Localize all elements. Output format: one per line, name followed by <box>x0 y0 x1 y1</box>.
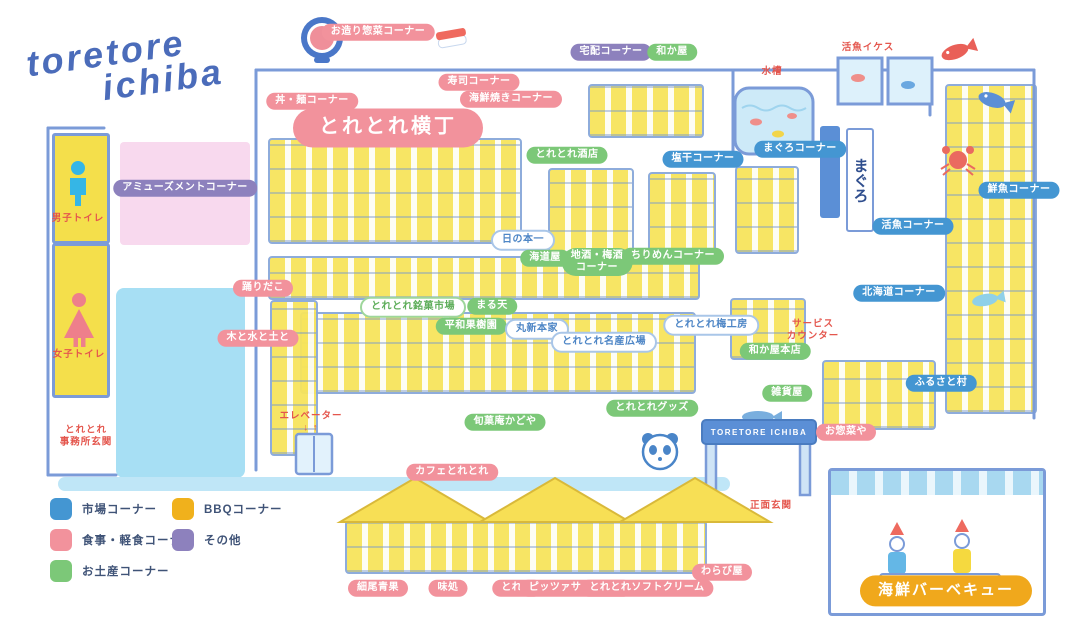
maguro-banner: まぐろ <box>846 128 874 232</box>
red-fish-icon <box>939 38 978 63</box>
legend-souvenir: お土産コーナー <box>50 560 170 582</box>
ajidokoro: 味処 <box>429 580 468 597</box>
legend-market-label: 市場コーナー <box>82 501 157 517</box>
osozaiya: お惣菜や <box>816 424 876 441</box>
service-counter-label: サービスカウンター <box>787 319 840 344</box>
cafe-toretore: カフェとれとれ <box>406 464 498 481</box>
toretore-meika-ichiba: とれとれ銘菓市場 <box>360 297 466 318</box>
mens-toilet-label: 男子トイレ <box>52 213 105 225</box>
legend-other-swatch <box>172 529 194 551</box>
zakkaya: 雑貨屋 <box>762 385 812 402</box>
toretore-ichiba-floor-map: toretore ichiba まぐろ TORETORE ICHIBA お造り惣… <box>0 0 1080 625</box>
yellow-tents-icon <box>340 478 770 522</box>
office-entrance-label: とれとれ事務所玄関 <box>60 425 113 450</box>
legend-food-swatch <box>50 529 72 551</box>
light-fish-icon <box>971 291 1006 309</box>
toretore-meisan-hiroba: とれとれ名産広場 <box>551 332 657 353</box>
panda-icon <box>642 433 678 469</box>
female-icon <box>64 293 94 347</box>
legend-bbq: BBQコーナー <box>172 498 283 520</box>
legend-other-label: その他 <box>204 532 242 548</box>
legend-souvenir-swatch <box>50 560 72 582</box>
maguro-corner: まぐろコーナー <box>754 141 846 158</box>
shiohoshi-corner: 塩干コーナー <box>663 151 744 168</box>
furusato-mura: ふるさと村 <box>906 375 977 392</box>
maruten: まる天 <box>467 298 517 315</box>
wakaya: 和か屋 <box>647 44 697 61</box>
hinomoto-ichi: 日の本一 <box>491 230 555 251</box>
ki-to-mizu-to-tsuchi: 木と水と土と <box>218 330 299 347</box>
wakaya-honten: 和か屋本店 <box>740 343 811 360</box>
kaisen-yaki-corner: 海鮮焼きコーナー <box>460 91 562 108</box>
hosoo-seika: 細尾青果 <box>348 580 408 597</box>
male-icon <box>70 161 86 206</box>
toretore-soft-cream: とれとれソフトクリーム <box>580 580 713 597</box>
toretore-saketen: とれとれ酒店 <box>527 147 608 164</box>
sengyo-corner: 鮮魚コーナー <box>979 182 1060 199</box>
legend-market: 市場コーナー <box>50 498 157 520</box>
toretore-ume-kobo: とれとれ梅工房 <box>663 315 759 336</box>
takuhai-corner: 宅配コーナー <box>571 44 652 61</box>
blue-fish-icon <box>977 89 1016 113</box>
odoridako: 踊りだこ <box>233 280 293 297</box>
legend-souvenir-label: お土産コーナー <box>82 563 170 579</box>
chirimen-corner: ちりめんコーナー <box>622 248 724 265</box>
gate-sign: TORETORE ICHIBA <box>701 419 817 445</box>
crab-icon <box>941 146 975 175</box>
legend-bbq-label: BBQコーナー <box>204 501 283 517</box>
katsugyo-ikesu-label: 活魚イケス <box>842 42 895 54</box>
katsugyo-corner: 活魚コーナー <box>873 218 954 235</box>
ozukuri-sozai-corner: お造り惣菜コーナー <box>322 24 435 41</box>
amusement-corner: アミューズメントコーナー <box>113 180 257 197</box>
elevator-icon <box>296 434 332 474</box>
shunkaan-kadoya: 旬菓庵かどや <box>465 414 546 431</box>
sushi-corner: 寿司コーナー <box>439 74 520 91</box>
toretore-goods: とれとれグッズ <box>606 400 698 417</box>
front-entrance-label: 正面玄関 <box>750 500 792 512</box>
aquarium-windows-icon <box>838 58 932 104</box>
don-men-corner: 丼・麺コーナー <box>266 93 358 110</box>
warabiya: わらび屋 <box>692 564 752 581</box>
womens-toilet-label: 女子トイレ <box>53 349 106 361</box>
sushi-icon <box>435 28 467 49</box>
legend-market-swatch <box>50 498 72 520</box>
toretore-yokocho: とれとれ横丁 <box>293 109 483 148</box>
bbq-diners-icon <box>880 519 1000 583</box>
elevator-label: エレベーター↓ ↑ <box>279 411 342 436</box>
legend-bbq-swatch <box>172 498 194 520</box>
hokkaido-corner: 北海道コーナー <box>853 285 945 302</box>
heiwa-kajuen: 平和果樹園 <box>436 318 507 335</box>
suiso-label: 水槽 <box>761 66 782 78</box>
kaisen-bbq: 海鮮バーベキュー <box>860 575 1032 606</box>
legend-other: その他 <box>172 529 242 551</box>
